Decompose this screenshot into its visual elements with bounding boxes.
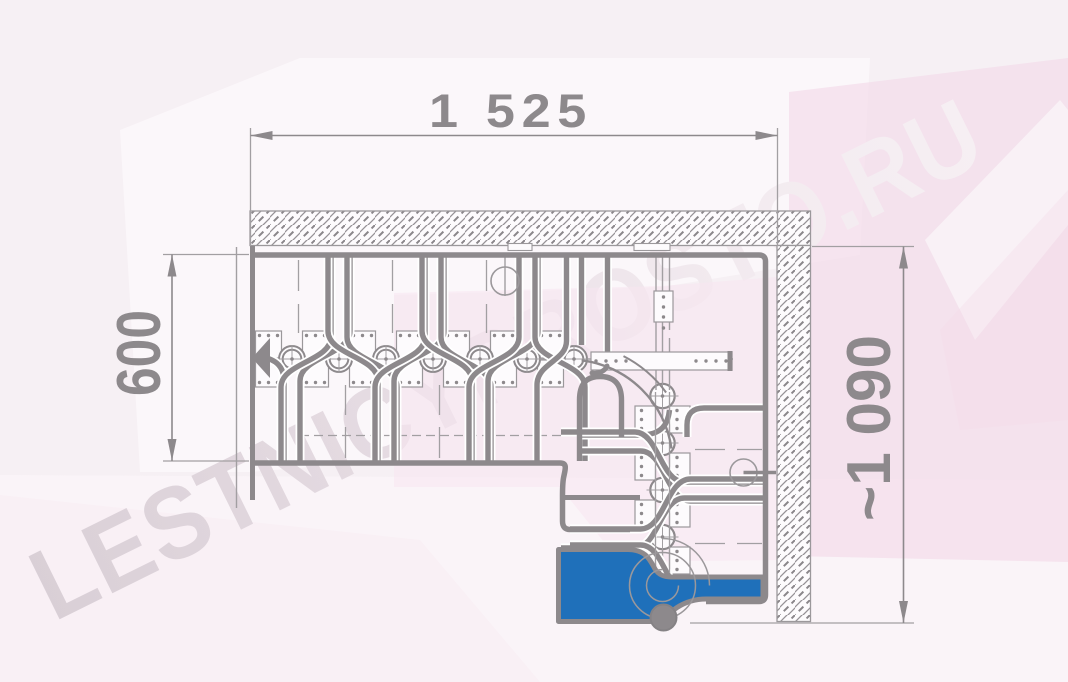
svg-text:~1 090: ~1 090 xyxy=(835,335,904,521)
svg-text:600: 600 xyxy=(105,310,174,396)
svg-text:1 525: 1 525 xyxy=(429,84,593,137)
